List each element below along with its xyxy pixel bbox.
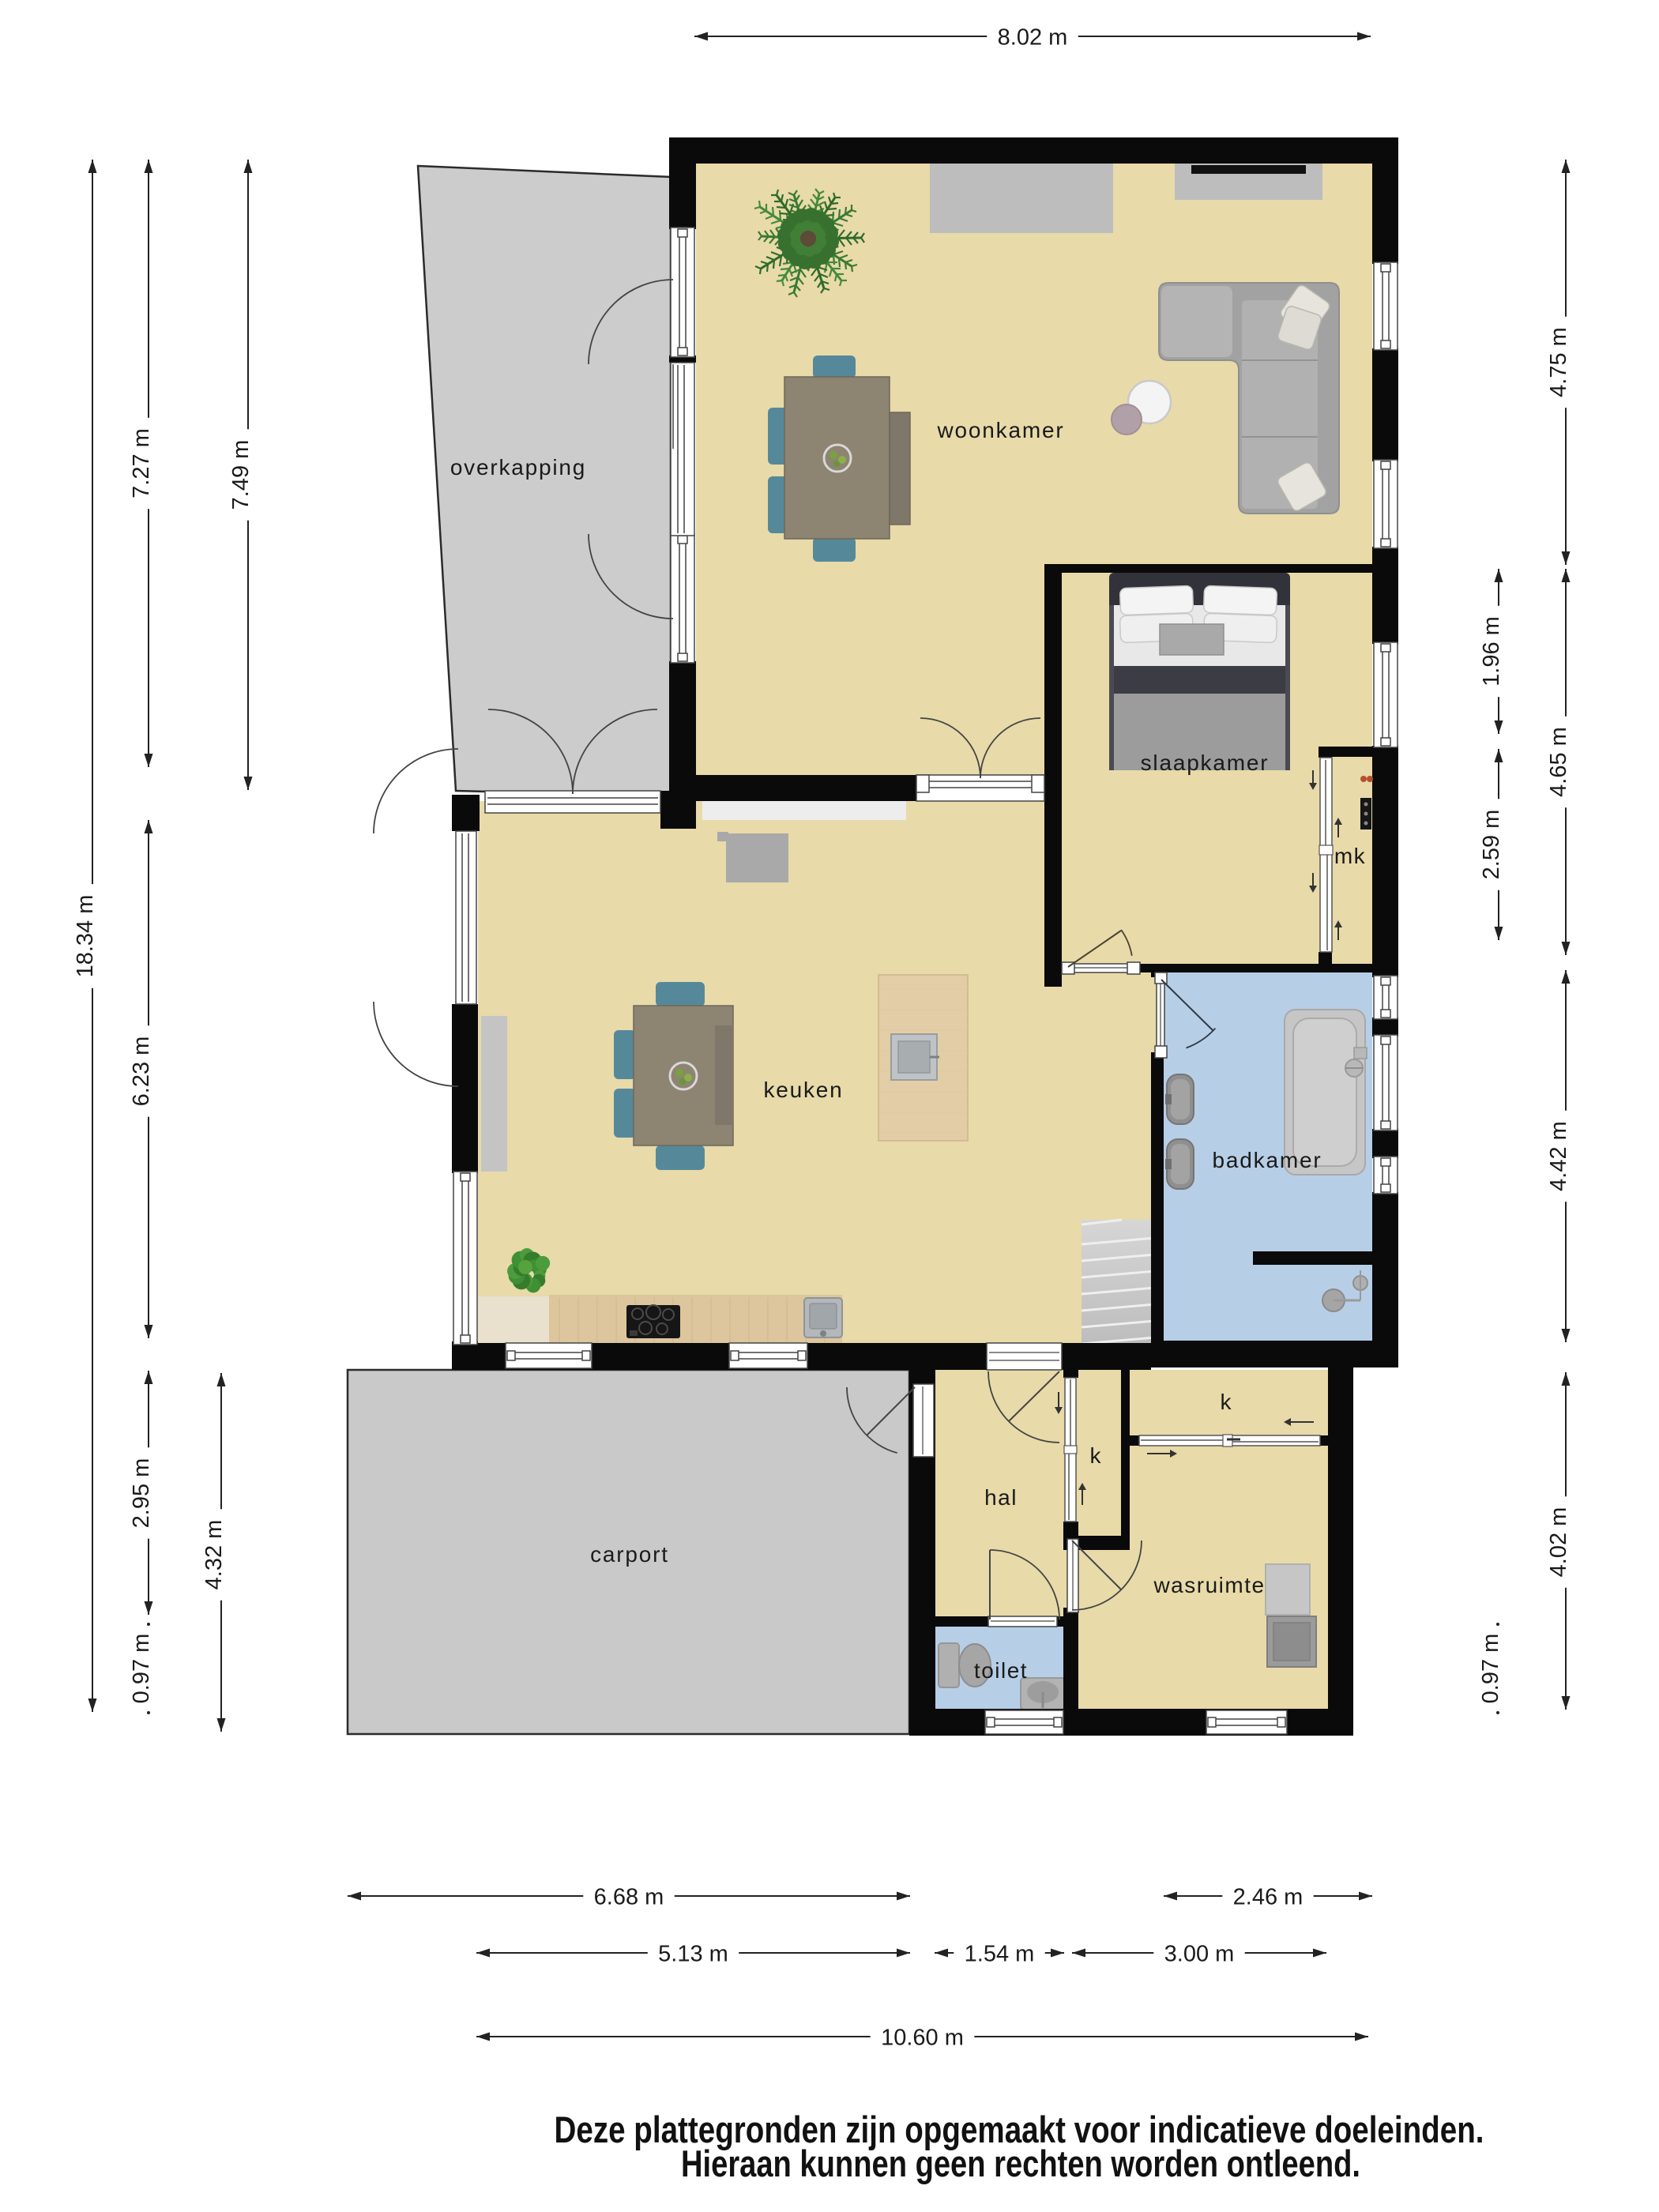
svg-text:woonkamer: woonkamer [937,418,1065,442]
svg-text:1.96 m: 1.96 m [1479,616,1504,687]
svg-text:7.49 m: 7.49 m [228,440,254,510]
svg-text:7.27 m: 7.27 m [129,428,154,498]
svg-text:4.32 m: 4.32 m [201,1520,227,1590]
svg-text:carport: carport [590,1542,669,1567]
svg-text:2.95 m: 2.95 m [129,1458,154,1529]
svg-text:badkamer: badkamer [1213,1148,1322,1172]
svg-text:k: k [1221,1390,1232,1414]
svg-text:3.00 m: 3.00 m [1164,1941,1235,1966]
svg-text:slaapkamer: slaapkamer [1141,750,1270,775]
svg-text:2.46 m: 2.46 m [1233,1884,1303,1909]
svg-text:mk: mk [1334,844,1366,868]
svg-text:0.97 m: 0.97 m [1478,1634,1503,1704]
svg-text:4.02 m: 4.02 m [1546,1507,1571,1578]
svg-text:6.23 m: 6.23 m [129,1036,154,1107]
svg-text:1.54 m: 1.54 m [965,1941,1035,1966]
svg-text:overkapping: overkapping [450,455,586,480]
svg-text:6.68 m: 6.68 m [594,1884,664,1909]
svg-text:k: k [1090,1443,1102,1468]
svg-text:hal: hal [984,1485,1018,1510]
svg-text:4.42 m: 4.42 m [1546,1121,1571,1191]
svg-text:2.59 m: 2.59 m [1479,810,1504,880]
svg-text:8.02 m: 8.02 m [998,24,1068,50]
svg-text:0.97 m: 0.97 m [129,1634,154,1704]
svg-text:5.13 m: 5.13 m [658,1941,728,1966]
svg-text:wasruimte: wasruimte [1153,1573,1265,1597]
svg-text:toilet: toilet [974,1658,1028,1683]
svg-text:10.60 m: 10.60 m [881,2025,964,2050]
svg-text:4.65 m: 4.65 m [1546,727,1571,797]
svg-text:4.75 m: 4.75 m [1546,327,1571,397]
svg-text:18.34 m: 18.34 m [73,895,98,978]
svg-text:Hieraan kunnen geen rechten wo: Hieraan kunnen geen rechten worden ontle… [681,2142,1360,2184]
svg-text:keuken: keuken [763,1078,843,1102]
